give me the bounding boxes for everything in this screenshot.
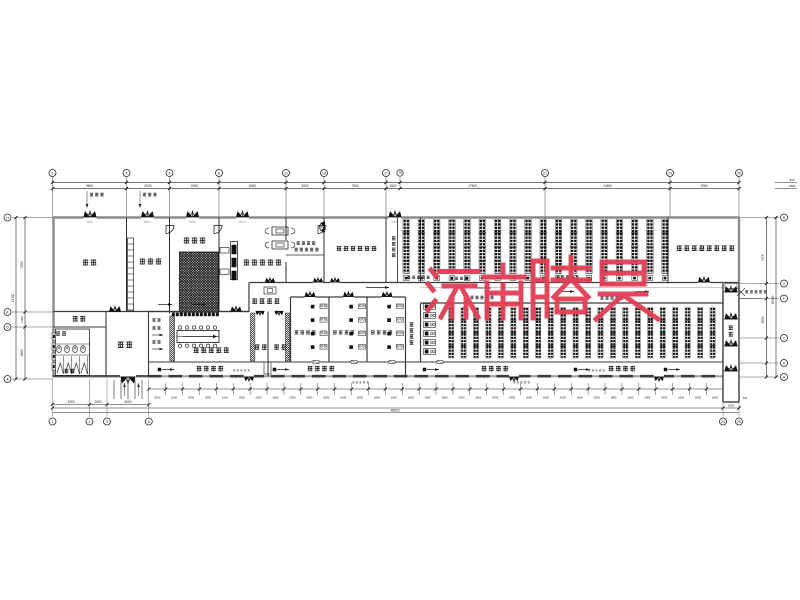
- svg-text:1800: 1800: [644, 396, 651, 400]
- svg-text:1800: 1800: [239, 396, 246, 400]
- svg-text:830: 830: [789, 178, 794, 182]
- svg-text:1800: 1800: [712, 396, 719, 400]
- svg-text:M1521: M1521: [392, 222, 399, 224]
- svg-text:1800: 1800: [678, 396, 685, 400]
- svg-text:1800: 1800: [340, 396, 347, 400]
- svg-text:D: D: [783, 361, 786, 365]
- svg-text:2000: 2000: [94, 400, 101, 404]
- svg-text:1800: 1800: [509, 396, 516, 400]
- svg-text:1800: 1800: [577, 396, 584, 400]
- svg-text:1800: 1800: [441, 396, 448, 400]
- svg-text:15950: 15950: [771, 295, 775, 304]
- svg-text:M1521: M1521: [189, 222, 196, 224]
- svg-text:842: 842: [743, 396, 748, 400]
- svg-text:2000: 2000: [222, 396, 229, 400]
- svg-text:M1521: M1521: [239, 222, 246, 224]
- svg-text:1900: 1900: [389, 184, 396, 188]
- svg-text:M1521: M1521: [87, 222, 94, 224]
- svg-text:8000: 8000: [249, 184, 256, 188]
- svg-text:12: 12: [284, 171, 288, 175]
- svg-text:17: 17: [384, 171, 388, 175]
- svg-text:2000: 2000: [357, 396, 364, 400]
- svg-text:1300: 1300: [20, 316, 24, 323]
- svg-text:C: C: [783, 336, 786, 340]
- svg-text:1800: 1800: [205, 396, 212, 400]
- svg-text:5: 5: [148, 420, 150, 424]
- svg-text:M1521: M1521: [144, 222, 151, 224]
- svg-text:24: 24: [721, 420, 725, 424]
- svg-text:2000: 2000: [560, 396, 567, 400]
- svg-text:4800: 4800: [20, 349, 24, 356]
- svg-text:6: 6: [169, 171, 171, 175]
- svg-text:3: 3: [106, 420, 108, 424]
- svg-text:7175: 7175: [761, 254, 765, 261]
- svg-text:1800: 1800: [171, 396, 178, 400]
- svg-text:25: 25: [737, 420, 741, 424]
- svg-text:2000: 2000: [627, 396, 634, 400]
- svg-text:1800: 1800: [408, 396, 415, 400]
- svg-text:4500: 4500: [301, 184, 308, 188]
- svg-text:25: 25: [737, 171, 741, 175]
- svg-text:1: 1: [52, 171, 54, 175]
- svg-text:2000: 2000: [458, 396, 465, 400]
- svg-text:1800: 1800: [543, 396, 550, 400]
- svg-text:1800: 1800: [306, 396, 313, 400]
- svg-text:2000: 2000: [188, 396, 195, 400]
- svg-text:2000: 2000: [255, 396, 262, 400]
- svg-text:7200: 7200: [20, 261, 24, 268]
- svg-text:2000: 2000: [526, 396, 533, 400]
- svg-text:23: 23: [668, 171, 672, 175]
- svg-text:18: 18: [398, 171, 402, 175]
- svg-text:17500: 17500: [468, 184, 477, 188]
- svg-text:14400: 14400: [11, 293, 15, 302]
- svg-text:2000: 2000: [492, 396, 499, 400]
- svg-text:9600: 9600: [86, 184, 93, 188]
- svg-text:2000: 2000: [289, 396, 296, 400]
- svg-text:2000: 2000: [695, 396, 702, 400]
- svg-text:8: 8: [218, 171, 220, 175]
- svg-text:2000: 2000: [323, 396, 330, 400]
- svg-text:14: 14: [322, 171, 326, 175]
- svg-text:5000: 5000: [124, 400, 131, 404]
- svg-text:2: 2: [89, 420, 91, 424]
- svg-text:48592: 48592: [390, 409, 400, 413]
- svg-text:5000: 5000: [144, 184, 151, 188]
- svg-text:D: D: [6, 325, 9, 329]
- svg-text:1: 1: [52, 420, 54, 424]
- svg-text:2000: 2000: [593, 396, 600, 400]
- svg-text:H: H: [6, 216, 9, 220]
- svg-text:1800: 1800: [374, 396, 381, 400]
- svg-text:1800: 1800: [475, 396, 482, 400]
- svg-text:1800: 1800: [272, 396, 279, 400]
- svg-text:14600: 14600: [603, 184, 612, 188]
- svg-text:2000: 2000: [154, 396, 161, 400]
- svg-text:2000: 2000: [391, 396, 398, 400]
- svg-text:1800: 1800: [610, 396, 617, 400]
- svg-text:2000: 2000: [424, 396, 431, 400]
- svg-text:6000: 6000: [191, 184, 198, 188]
- svg-text:21: 21: [543, 171, 547, 175]
- svg-text:7500: 7500: [351, 184, 358, 188]
- svg-text:1800: 1800: [789, 184, 796, 188]
- svg-text:4300: 4300: [67, 400, 74, 404]
- svg-text:4: 4: [126, 171, 128, 175]
- svg-text:3950: 3950: [761, 316, 765, 323]
- svg-text:G: G: [783, 282, 786, 286]
- svg-text:8300: 8300: [701, 184, 708, 188]
- svg-text:1600: 1600: [728, 404, 735, 408]
- svg-text:2000: 2000: [661, 396, 668, 400]
